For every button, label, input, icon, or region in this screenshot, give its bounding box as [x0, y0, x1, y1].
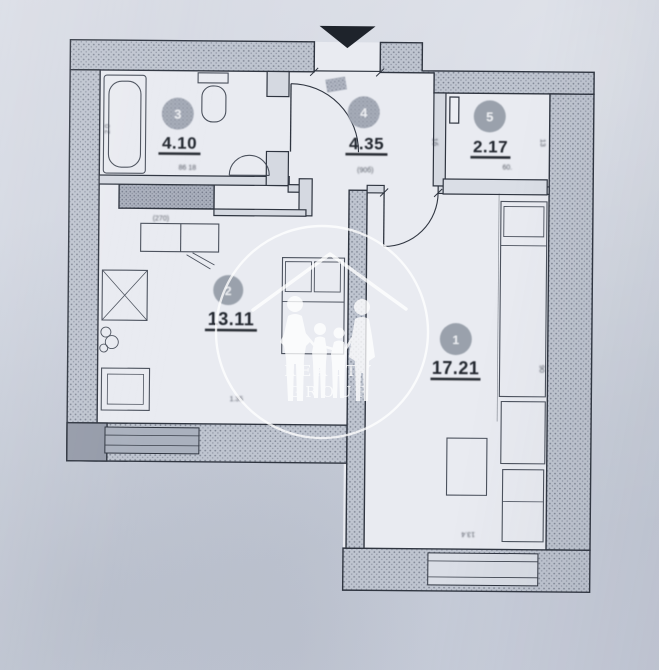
dim-label: 86 18: [179, 165, 197, 172]
wall-kitchen-top: [214, 209, 306, 216]
dim-label: 13.4: [461, 530, 475, 537]
wall-pier-below-bathroom: [119, 184, 214, 209]
room-number-bathroom: 3: [174, 107, 181, 122]
room-number-wardrobe: 5: [486, 109, 493, 124]
room-number-hallway: 4: [360, 105, 368, 120]
wall-hall-bottom-stub: [288, 185, 300, 193]
wall-top-left: [70, 40, 314, 72]
wall-left: [67, 70, 100, 461]
dim-label: 2.0: [105, 124, 112, 134]
wall-bathroom-right-upper: [267, 71, 289, 96]
wardrobe-sill: [443, 179, 547, 195]
watermark-text-line1: REALTY: [284, 362, 376, 380]
wall-right: [546, 94, 594, 550]
room-area-living: 13.11: [208, 309, 255, 329]
floor-plan-svg: 3 4.10 4 4.35 5 2.17 2 13.11 1 17.21: [0, 0, 659, 670]
floor-plan-photo: 3 4.10 4 4.35 5 2.17 2 13.11 1 17.21: [0, 0, 659, 670]
wall-bathroom-right-lower: [266, 151, 288, 185]
watermark-text-line2: GROUP: [288, 383, 371, 401]
room-area-bedroom: 17.21: [432, 358, 480, 378]
dim-label: 60.: [502, 164, 512, 171]
room-area-bathroom: 4.10: [162, 134, 197, 153]
room-number-bedroom: 1: [452, 333, 459, 347]
room-area-wardrobe: 2.17: [473, 137, 508, 156]
dim-label: 90: [538, 365, 545, 373]
shaft-wardrobe: [450, 97, 459, 123]
wall-bedroom-top-left: [367, 185, 384, 193]
wall-bathroom-bottom: [99, 175, 289, 186]
bathroom-door-leaf: [290, 84, 291, 152]
dim-label: 1б: [431, 138, 439, 146]
dim-label: (270): [153, 215, 169, 222]
dim-label: 13: [539, 139, 546, 147]
entrance-threshold: [314, 71, 380, 72]
window-living: [105, 427, 199, 454]
wall-corner-block: [67, 423, 107, 461]
dim-label: (90б): [357, 166, 374, 174]
room-area-hallway: 4.35: [349, 134, 384, 153]
apartment-footprint: [66, 40, 595, 593]
window-bedroom: [428, 553, 538, 586]
